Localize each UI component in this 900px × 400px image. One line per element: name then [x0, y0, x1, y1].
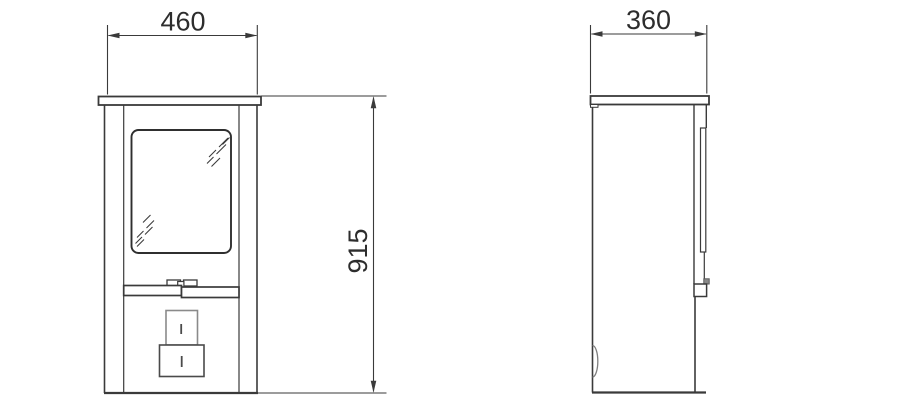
front-height-dimension: 915 — [258, 96, 387, 393]
arrowhead-down-icon — [371, 381, 377, 393]
side-depth-dimension-value: 360 — [626, 5, 671, 35]
side-door-frame-profile — [701, 128, 706, 252]
drawing-svg: 460 915 — [0, 0, 900, 400]
side-door-handle-nub — [704, 279, 709, 284]
arrowhead-up-icon — [371, 96, 377, 108]
arrowhead-right-icon — [695, 31, 707, 37]
arrowhead-right-icon — [245, 33, 257, 39]
ledge-band-right — [182, 287, 240, 298]
door-glass-window — [132, 130, 232, 253]
door-latch-right-tab — [184, 280, 198, 286]
front-width-dimension-value: 460 — [160, 7, 205, 37]
side-ledge-profile — [694, 284, 707, 297]
side-view — [591, 96, 710, 393]
arrowhead-left-icon — [108, 33, 120, 39]
front-view — [99, 97, 262, 394]
ledge-band-left — [124, 286, 182, 296]
front-width-dimension: 460 — [108, 7, 258, 95]
front-height-dimension-value: 915 — [343, 228, 373, 273]
side-top-plate-lip — [591, 105, 599, 108]
arrowhead-left-icon — [591, 31, 603, 37]
side-depth-dimension: 360 — [591, 5, 707, 94]
stove-dimension-drawing: 460 915 — [0, 0, 900, 400]
front-top-plate — [99, 97, 262, 106]
side-top-plate — [591, 96, 710, 105]
